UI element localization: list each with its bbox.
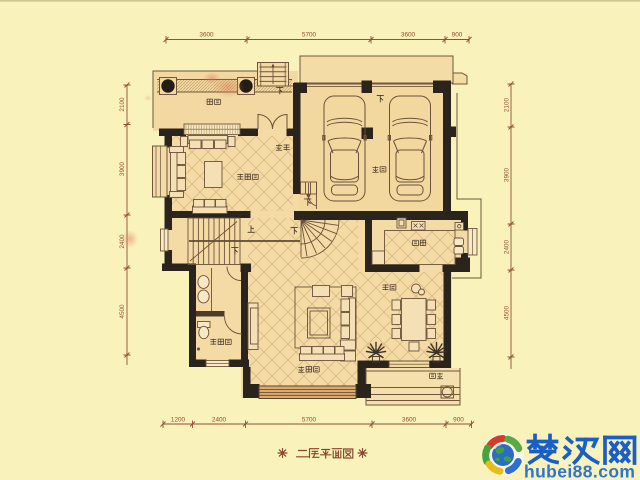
svg-text:3900: 3900 <box>504 167 511 182</box>
svg-text:900: 900 <box>452 32 463 39</box>
svg-text:4500: 4500 <box>504 305 511 320</box>
svg-text:900: 900 <box>453 417 464 424</box>
svg-text:2100: 2100 <box>504 97 511 112</box>
svg-text:5700: 5700 <box>302 417 317 424</box>
svg-text:3600: 3600 <box>199 32 214 39</box>
svg-text:4500: 4500 <box>119 304 126 319</box>
svg-text:1200: 1200 <box>171 417 186 424</box>
svg-text:2400: 2400 <box>504 239 511 254</box>
svg-text:2400: 2400 <box>212 417 227 424</box>
svg-text:2100: 2100 <box>119 97 126 112</box>
svg-text:3900: 3900 <box>119 161 126 176</box>
svg-text:5700: 5700 <box>302 32 317 39</box>
svg-text:3600: 3600 <box>401 32 416 39</box>
svg-text:3600: 3600 <box>402 417 417 424</box>
svg-text:hubei88.com: hubei88.com <box>524 462 635 480</box>
